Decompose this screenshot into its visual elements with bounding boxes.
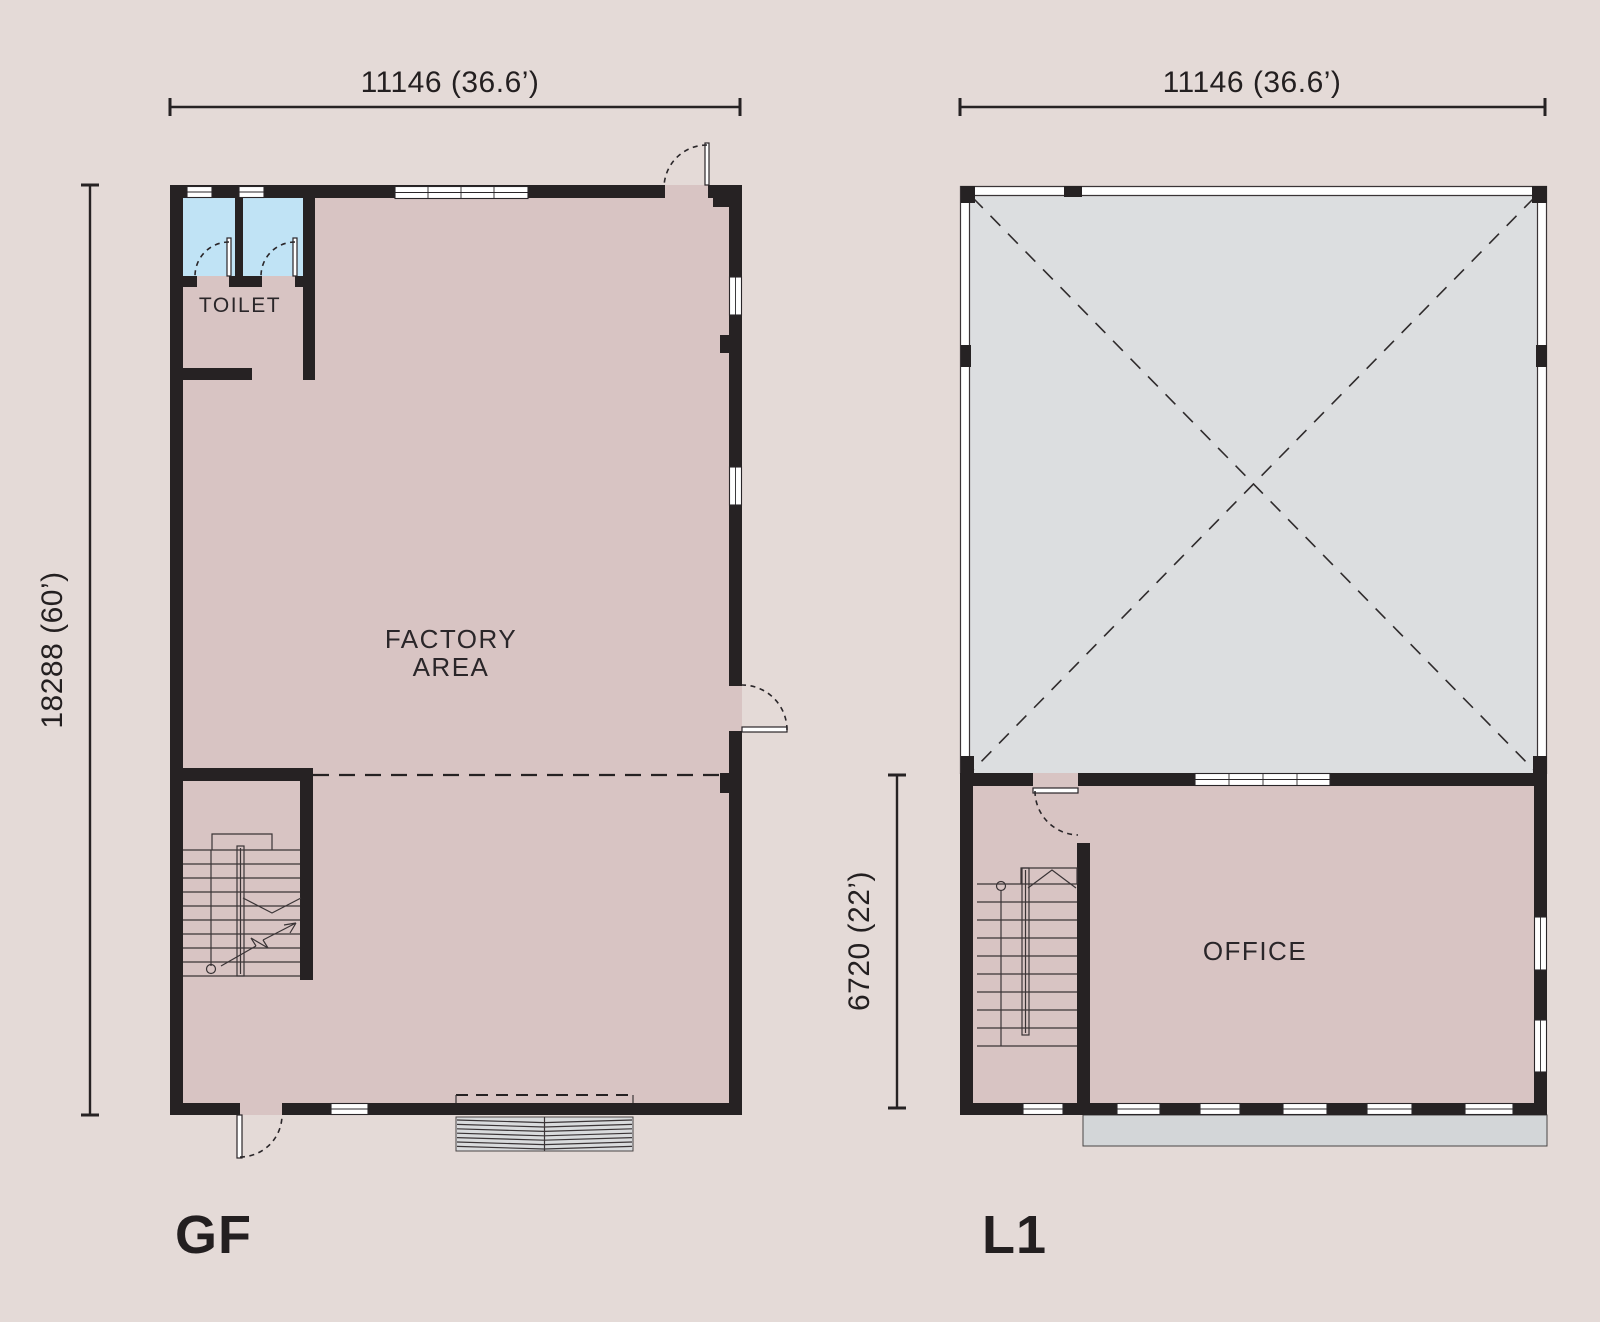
gf-stall-door-leaf	[227, 238, 231, 276]
gf-right-door-swing	[742, 685, 787, 730]
l1-width-dimension: 11146 (36.6’)	[1163, 66, 1342, 99]
l1-column	[1532, 186, 1547, 203]
gf-top-door-swing	[664, 145, 707, 188]
floorplan-canvas: 11146 (36.6’) 18288 (60’) TOILET FACTORY…	[0, 0, 1600, 1322]
l1-canopy	[1083, 1115, 1547, 1146]
l1-dimension-top: 11146 (36.6’)	[960, 66, 1545, 116]
l1-column	[961, 345, 971, 367]
gf-height-dimension: 18288 (60’)	[36, 571, 69, 728]
l1-column	[1064, 186, 1082, 197]
l1-dimension-left: 6720 (22’)	[843, 775, 906, 1108]
gf-right-door-leaf	[742, 727, 787, 732]
l1-column	[1536, 345, 1547, 367]
l1-office-door-leaf	[1033, 788, 1078, 793]
gf-dimension-left: 18288 (60’)	[36, 185, 99, 1115]
gf-column	[720, 773, 729, 793]
gf-top-door-leaf	[705, 143, 709, 185]
l1-plan: 11146 (36.6’) 6720 (22’) OFFICE L1	[843, 66, 1547, 1265]
l1-floor-label: L1	[982, 1205, 1047, 1265]
gf-bottom-door-swing	[240, 1115, 282, 1157]
gf-stall-door-leaf	[293, 238, 297, 276]
gf-floor-label: GF	[175, 1205, 252, 1265]
gf-factory-label-line1: FACTORY	[385, 624, 517, 654]
gf-factory-label-line2: AREA	[413, 652, 490, 682]
gf-toilet-label: TOILET	[199, 294, 281, 317]
gf-bottom-door-leaf	[237, 1115, 242, 1158]
l1-column	[1533, 756, 1547, 773]
gf-width-dimension: 11146 (36.6’)	[361, 66, 540, 99]
gf-dimension-top: 11146 (36.6’)	[170, 66, 740, 116]
gf-column	[720, 335, 729, 353]
floorplan-drawing: 11146 (36.6’) 18288 (60’) TOILET FACTORY…	[0, 0, 1600, 1322]
gf-plan: 11146 (36.6’) 18288 (60’) TOILET FACTORY…	[36, 66, 787, 1265]
l1-void-area	[960, 186, 1547, 774]
l1-height-dimension: 6720 (22’)	[843, 871, 876, 1011]
l1-column	[961, 186, 975, 203]
l1-column	[961, 756, 974, 773]
l1-office-label: OFFICE	[1203, 936, 1307, 966]
l1-door-opening	[1033, 773, 1078, 786]
